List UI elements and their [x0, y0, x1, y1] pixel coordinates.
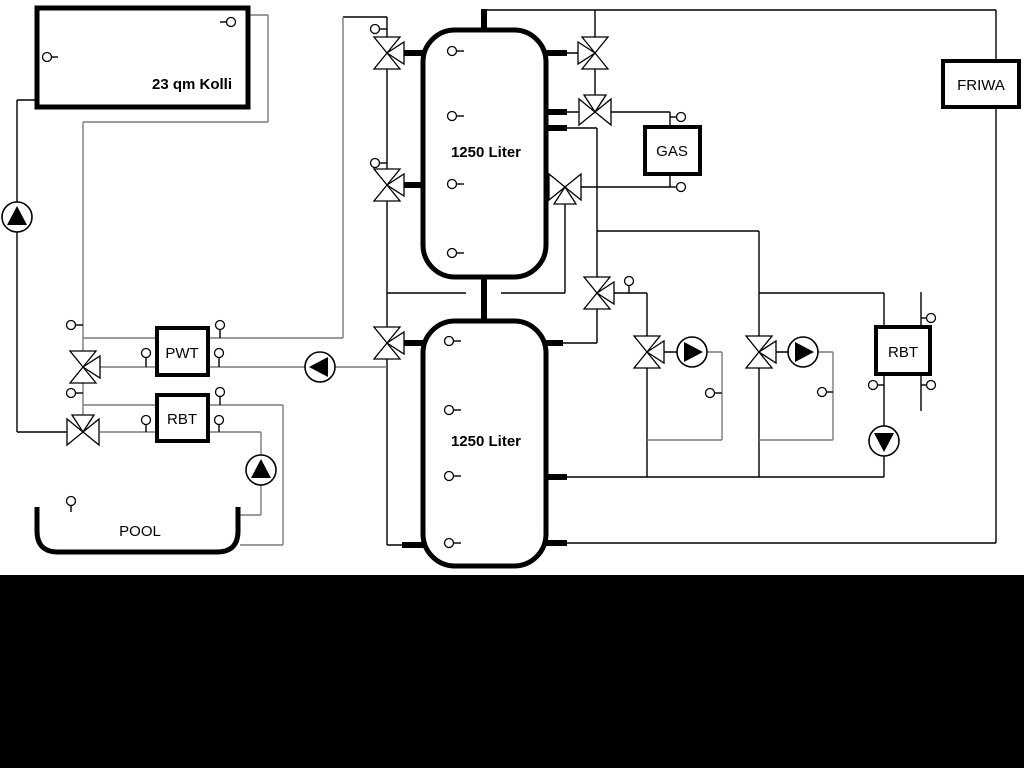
three-way-valve-icon: [746, 336, 776, 368]
three-way-valve-icon: [70, 351, 100, 383]
temperature-sensor-icon: [670, 113, 686, 122]
pump-icon: [246, 455, 276, 485]
rbt-left-label: RBT: [167, 411, 197, 428]
hydraulic-schematic: 23 qm Kolli 1250 Liter 1250 Liter GAS FR…: [0, 0, 1024, 768]
three-way-valve-icon: [374, 37, 404, 69]
temperature-sensor-icon: [818, 388, 834, 397]
bottom-black-bar: [0, 575, 1024, 768]
three-way-valve-icon: [374, 327, 404, 359]
three-way-valve-icon: [374, 169, 404, 201]
three-way-valve-icon: [579, 95, 611, 125]
temperature-sensor-icon: [216, 321, 225, 339]
three-way-valve-icon: [578, 37, 608, 69]
pipe-charge-valve-chain: [343, 17, 402, 545]
pump-icon: [305, 352, 335, 382]
three-way-valve-icon: [584, 277, 614, 309]
friwa-label: FRIWA: [957, 77, 1005, 94]
three-way-valve-icon: [549, 174, 581, 204]
tank-top-label: 1250 Liter: [451, 144, 521, 161]
three-way-valve-icon: [67, 415, 99, 445]
temperature-sensor-icon: [921, 381, 936, 390]
three-way-valve-icon: [634, 336, 664, 368]
rbt-right-label: RBT: [888, 344, 918, 361]
pipe-pwt-ports: [83, 338, 387, 367]
temperature-sensor-icon: [371, 25, 388, 34]
pool-label: POOL: [119, 523, 161, 540]
pump-icon: [2, 202, 32, 232]
tank-bottom-label: 1250 Liter: [451, 433, 521, 450]
pump-icon: [677, 337, 707, 367]
temperature-sensor-icon: [142, 416, 151, 433]
pipe-heating-circuit-1: [614, 293, 677, 477]
pump-icon: [788, 337, 818, 367]
temperature-sensor-icon: [706, 389, 723, 398]
schematic-page: 23 qm Kolli 1250 Liter 1250 Liter GAS FR…: [0, 0, 1024, 768]
pipe-dhw-friwa-loop: [484, 10, 996, 543]
temperature-sensor-icon: [215, 349, 224, 368]
temperature-sensor-icon: [625, 277, 634, 294]
gas-label: GAS: [656, 143, 688, 160]
temperature-sensor-icon: [670, 183, 686, 192]
temperature-sensor-icon: [67, 389, 84, 398]
pwt-label: PWT: [165, 345, 198, 362]
temperature-sensor-icon: [371, 159, 388, 168]
pipe-solar-supply: [17, 100, 69, 432]
collector-label: 23 qm Kolli: [152, 76, 232, 93]
temperature-sensor-icon: [216, 388, 225, 406]
temperature-sensor-icon: [142, 349, 151, 368]
temperature-sensor-icon: [67, 321, 84, 330]
pump-icon: [869, 426, 899, 456]
temperature-sensor-icon: [215, 416, 224, 433]
temperature-sensor-icon: [921, 314, 936, 323]
temperature-sensor-icon: [869, 381, 885, 390]
temperature-sensor-icon: [67, 497, 76, 513]
